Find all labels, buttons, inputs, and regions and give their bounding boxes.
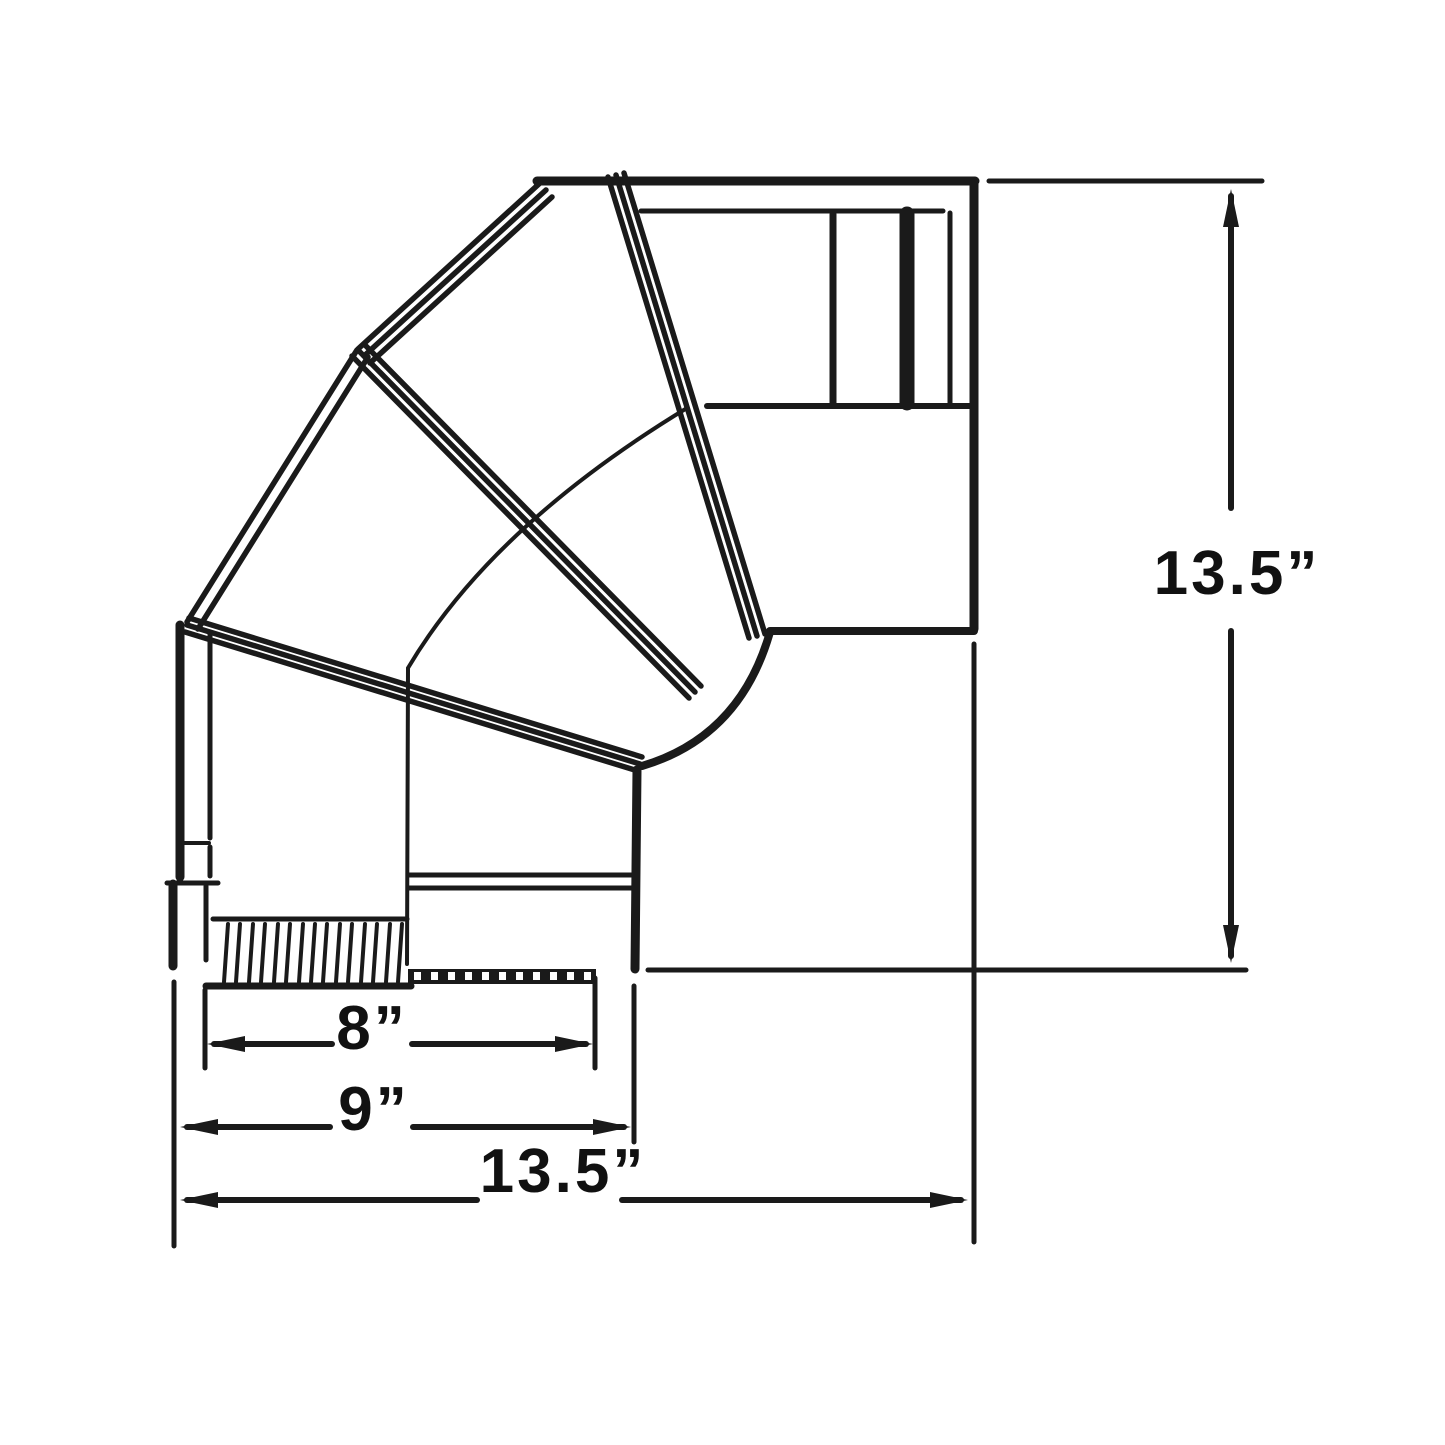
elbow-diagram bbox=[0, 0, 1445, 1445]
crimp-hatch-band bbox=[206, 919, 411, 986]
crimp-dot-band bbox=[408, 969, 596, 984]
dimension-label-total-height: 13.5” bbox=[1087, 543, 1387, 605]
diagram-canvas: 8” 9” 13.5” 13.5” bbox=[0, 0, 1445, 1445]
outer-edge-lower-band bbox=[187, 350, 368, 629]
seam-joint-2 bbox=[352, 344, 701, 698]
elbow-outline bbox=[173, 181, 975, 969]
dimension-label-outer-width: 9” bbox=[274, 1079, 474, 1141]
top-pipe-crimp-detail bbox=[641, 211, 973, 406]
dimension-label-total-width: 13.5” bbox=[413, 1141, 713, 1203]
outer-edge-upper-band bbox=[358, 183, 552, 363]
bore-line bbox=[407, 408, 687, 964]
seam-joint-3 bbox=[185, 618, 642, 771]
dimension-label-inner-width: 8” bbox=[272, 998, 472, 1060]
